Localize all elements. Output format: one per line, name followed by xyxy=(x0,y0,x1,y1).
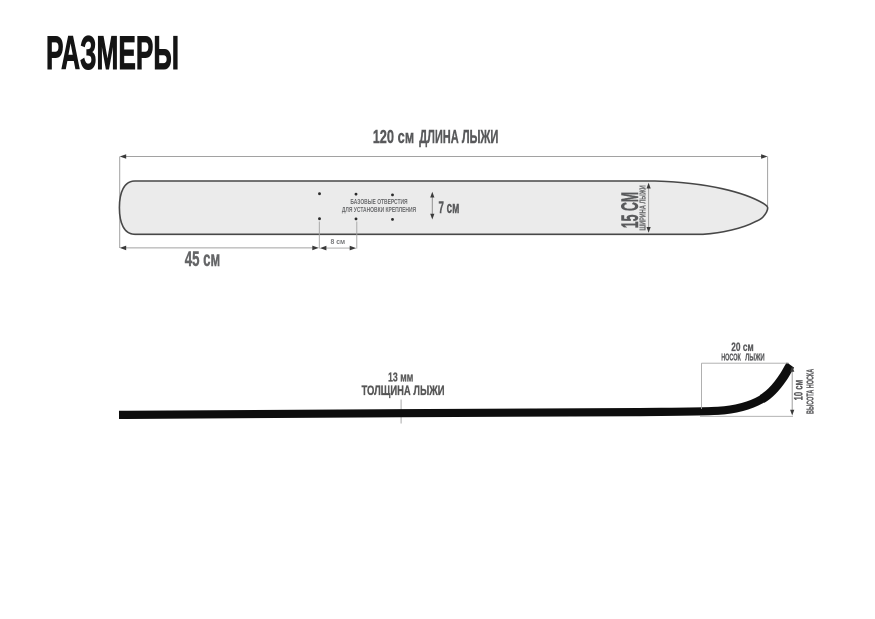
svg-text:ШИРИНА ЛЫЖИ: ШИРИНА ЛЫЖИ xyxy=(637,185,647,230)
svg-text:8 см: 8 см xyxy=(331,237,346,246)
svg-text:ЛЫЖИ: ЛЫЖИ xyxy=(745,353,765,364)
svg-text:ДЛЯ УСТАНОВКИ КРЕПЛЕНИЯ: ДЛЯ УСТАНОВКИ КРЕПЛЕНИЯ xyxy=(342,205,416,214)
svg-text:ДЛИНА ЛЫЖИ: ДЛИНА ЛЫЖИ xyxy=(419,126,498,147)
svg-text:ТОЛЩИНА ЛЫЖИ: ТОЛЩИНА ЛЫЖИ xyxy=(362,382,445,398)
svg-text:10 см: 10 см xyxy=(792,380,806,401)
svg-text:РАЗМЕРЫ: РАЗМЕРЫ xyxy=(46,26,179,79)
svg-text:120 см: 120 см xyxy=(373,126,415,147)
svg-text:7 см: 7 см xyxy=(439,199,460,217)
svg-text:45 см: 45 см xyxy=(185,248,221,271)
svg-text:НОСОК: НОСОК xyxy=(721,353,741,364)
svg-text:ВЫСОТА НОСКА: ВЫСОТА НОСКА xyxy=(805,369,816,414)
